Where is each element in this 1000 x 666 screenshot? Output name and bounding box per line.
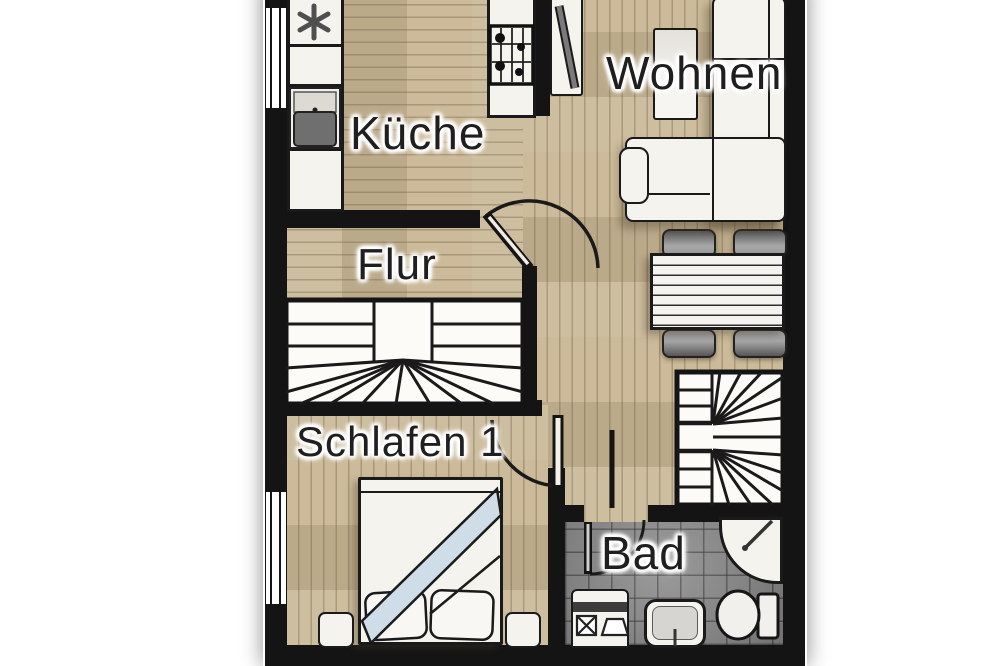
window-bedroom <box>266 492 286 604</box>
counter-divider <box>289 44 342 47</box>
wall-bath-top-left <box>548 505 584 522</box>
washing-machine-panel <box>573 602 627 612</box>
counter-divider <box>289 84 342 87</box>
kitchen-counter-left <box>287 0 344 212</box>
bath-sink <box>644 599 706 648</box>
bath-sink-basin <box>652 606 698 640</box>
room-label-hall: Flur <box>357 240 437 290</box>
washing-machine <box>571 589 629 648</box>
counter-divider <box>289 148 342 151</box>
sofa-armrest <box>619 147 649 204</box>
wall-hall-top <box>265 210 480 228</box>
wall-bedroom-top <box>265 400 542 416</box>
room-label-living: Wohnen <box>606 46 783 100</box>
room-label-bedroom: Schlafen 1 <box>296 418 504 466</box>
dining-chair <box>662 329 716 358</box>
window-kitchen <box>266 8 286 108</box>
nightstand <box>318 612 354 648</box>
sofa-seat-seam <box>712 139 714 220</box>
room-label-bath: Bad <box>601 526 686 580</box>
sofa-seat <box>625 137 786 222</box>
kitchen-counter-right <box>487 0 536 118</box>
floor-plan-page: Küche Wohnen Flur Schlafen 1 Bad <box>0 0 1000 666</box>
wall-hall-right <box>522 266 537 406</box>
nightstand <box>505 612 541 648</box>
dining-table <box>650 253 785 330</box>
bed <box>358 477 503 645</box>
wall-kitchen-living <box>536 0 550 116</box>
room-label-kitchen: Küche <box>350 106 485 160</box>
wall-bedroom-bath <box>548 468 565 666</box>
tv-sideboard <box>550 0 583 96</box>
outer-wall-bottom <box>265 645 805 666</box>
dining-chair <box>733 329 787 358</box>
